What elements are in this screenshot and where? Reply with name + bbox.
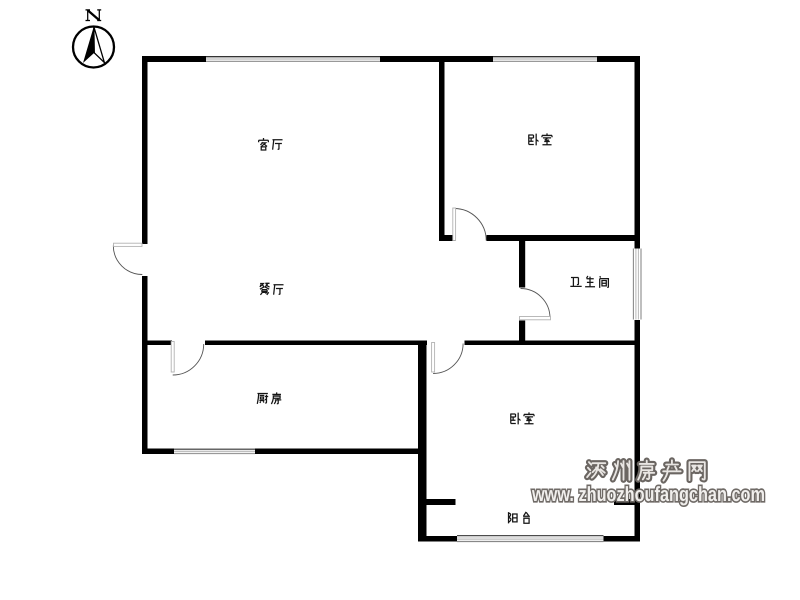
svg-text:www. zhuozhoufangchan.com: www. zhuozhoufangchan.com bbox=[531, 483, 765, 506]
